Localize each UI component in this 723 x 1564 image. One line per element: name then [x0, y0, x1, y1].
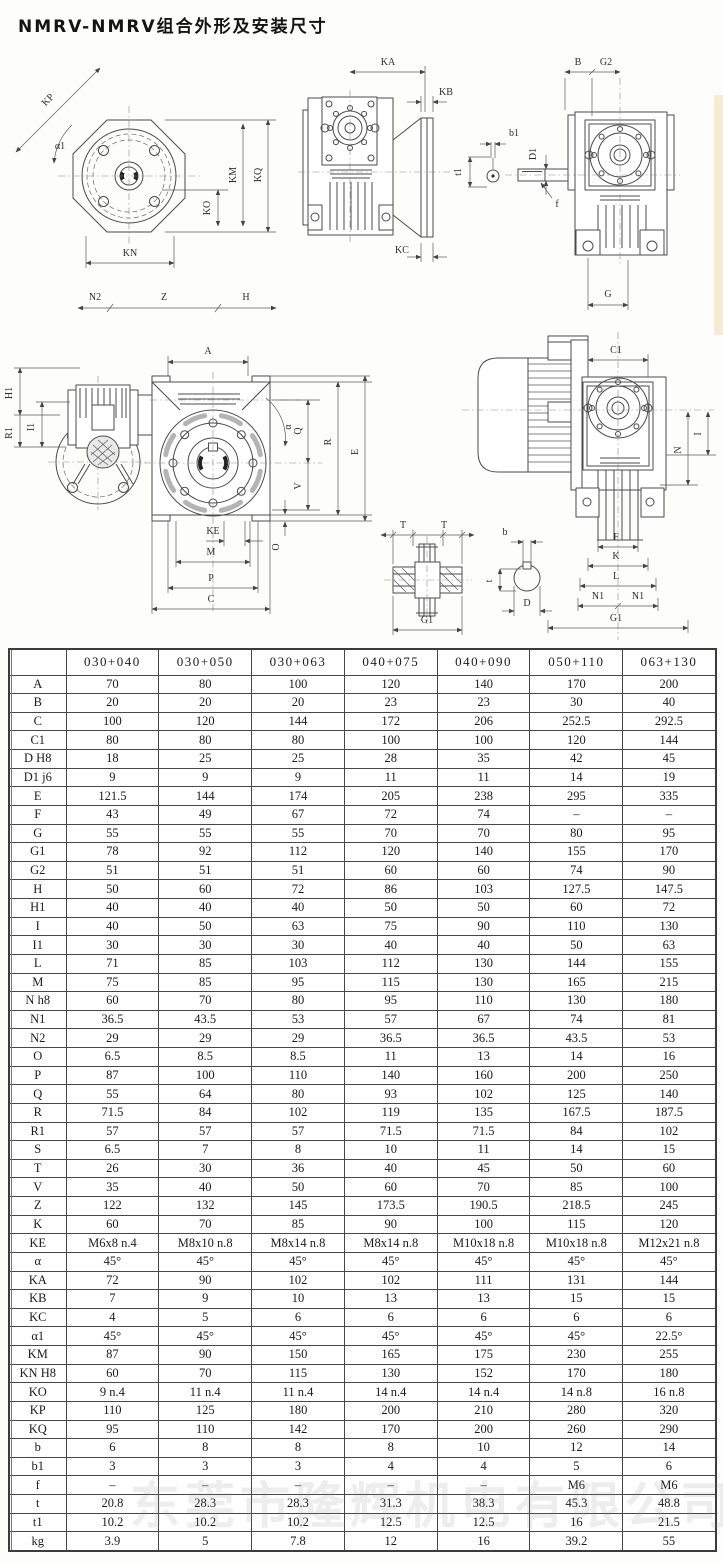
- value-cell: 125: [159, 1401, 252, 1420]
- row-label: KO: [9, 1383, 66, 1402]
- value-cell: 29: [252, 1029, 345, 1048]
- value-cell: 110: [159, 1420, 252, 1439]
- value-cell: 28.3: [252, 1495, 345, 1514]
- value-cell: 152: [437, 1364, 530, 1383]
- dimension-table: 030+040030+050030+063040+075040+090050+1…: [8, 648, 717, 1552]
- row-label: KQ: [9, 1420, 66, 1439]
- value-cell: 71.5: [344, 1122, 437, 1141]
- value-cell: 60: [623, 1159, 716, 1178]
- table-row: KC4566666: [9, 1308, 716, 1327]
- value-cell: 40: [252, 899, 345, 918]
- value-cell: 144: [623, 731, 716, 750]
- dim-label-kc: KC: [395, 245, 409, 256]
- table-row: T26303640455060: [9, 1159, 716, 1178]
- table-row: t20.828.328.331.338.345.348.8: [9, 1495, 716, 1514]
- value-cell: 70: [66, 675, 159, 694]
- value-cell: 45: [623, 750, 716, 769]
- value-cell: 50: [66, 880, 159, 899]
- value-cell: 100: [344, 731, 437, 750]
- value-cell: 25: [252, 750, 345, 769]
- value-cell: 172: [344, 712, 437, 731]
- dim-label-b1: b1: [509, 128, 519, 139]
- value-cell: 55: [66, 824, 159, 843]
- value-cell: 238: [437, 787, 530, 806]
- value-cell: 215: [623, 973, 716, 992]
- value-cell: 245: [623, 1197, 716, 1216]
- column-header: 030+040: [66, 649, 159, 675]
- table-row: I4050637590110130: [9, 917, 716, 936]
- value-cell: 40: [344, 1159, 437, 1178]
- value-cell: 39.2: [530, 1532, 623, 1551]
- value-cell: 80: [530, 824, 623, 843]
- value-cell: 110: [66, 1401, 159, 1420]
- value-cell: 38.3: [437, 1495, 530, 1514]
- value-cell: 57: [159, 1122, 252, 1141]
- table-row: b6888101214: [9, 1439, 716, 1458]
- value-cell: 280: [530, 1401, 623, 1420]
- row-label: C1: [9, 731, 66, 750]
- value-cell: 16: [437, 1532, 530, 1551]
- dim-label-h: H: [242, 292, 249, 303]
- dim-label-d1: D1: [528, 148, 539, 160]
- value-cell: 48.8: [623, 1495, 716, 1514]
- value-cell: 140: [344, 1066, 437, 1085]
- table-row: S6.57810111415: [9, 1141, 716, 1160]
- value-cell: 50: [252, 1178, 345, 1197]
- row-label: KM: [9, 1346, 66, 1365]
- value-cell: 40: [344, 936, 437, 955]
- value-cell: 95: [623, 824, 716, 843]
- value-cell: 50: [530, 1159, 623, 1178]
- value-cell: M8x14 n.8: [252, 1234, 345, 1253]
- value-cell: 45°: [252, 1327, 345, 1346]
- value-cell: 170: [530, 675, 623, 694]
- value-cell: 20.8: [66, 1495, 159, 1514]
- row-label: N h8: [9, 992, 66, 1011]
- value-cell: 190.5: [437, 1197, 530, 1216]
- table-row: D H818252528354245: [9, 750, 716, 769]
- value-cell: 20: [252, 694, 345, 713]
- value-cell: 50: [437, 899, 530, 918]
- value-cell: 130: [623, 917, 716, 936]
- table-row: N h860708095110130180: [9, 992, 716, 1011]
- row-label: A: [9, 675, 66, 694]
- value-cell: 45°: [66, 1327, 159, 1346]
- value-cell: 115: [344, 973, 437, 992]
- shaft-view-drawing: b t D: [484, 527, 552, 616]
- dim-label-kb: KB: [439, 87, 453, 98]
- value-cell: 110: [252, 1066, 345, 1085]
- value-cell: 30: [66, 936, 159, 955]
- value-cell: 90: [159, 1346, 252, 1365]
- value-cell: 120: [530, 731, 623, 750]
- table-row: H50607286103127.5147.5: [9, 880, 716, 899]
- value-cell: 15: [623, 1141, 716, 1160]
- row-label: α1: [9, 1327, 66, 1346]
- value-cell: 120: [623, 1215, 716, 1234]
- value-cell: –: [159, 1476, 252, 1495]
- value-cell: 29: [159, 1029, 252, 1048]
- dim-label-b: B: [575, 57, 582, 68]
- row-label: N1: [9, 1010, 66, 1029]
- value-cell: 11: [437, 1141, 530, 1160]
- value-cell: 31.3: [344, 1495, 437, 1514]
- table-row: Z122132145173.5190.5218.5245: [9, 1197, 716, 1216]
- row-label: KE: [9, 1234, 66, 1253]
- value-cell: 165: [530, 973, 623, 992]
- row-label: N2: [9, 1029, 66, 1048]
- value-cell: 90: [159, 1271, 252, 1290]
- value-cell: 200: [623, 675, 716, 694]
- value-cell: 86: [344, 880, 437, 899]
- value-cell: 175: [437, 1346, 530, 1365]
- value-cell: 85: [252, 1215, 345, 1234]
- value-cell: 110: [437, 992, 530, 1011]
- table-header-row: 030+040030+050030+063040+075040+090050+1…: [9, 649, 716, 675]
- value-cell: 45°: [344, 1327, 437, 1346]
- row-label: G1: [9, 843, 66, 862]
- value-cell: 30: [530, 694, 623, 713]
- value-cell: 320: [623, 1401, 716, 1420]
- value-cell: 5: [159, 1532, 252, 1551]
- table-row: F4349677274––: [9, 805, 716, 824]
- front-view-drawing: B G2 D1 f G: [505, 57, 680, 310]
- value-cell: 60: [437, 861, 530, 880]
- value-cell: 144: [252, 712, 345, 731]
- value-cell: 9: [159, 1290, 252, 1309]
- value-cell: 180: [623, 1364, 716, 1383]
- value-cell: 11: [344, 768, 437, 787]
- value-cell: 20: [159, 694, 252, 713]
- row-label: t1: [9, 1513, 66, 1532]
- table-row: N229292936.536.543.553: [9, 1029, 716, 1048]
- value-cell: 140: [623, 1085, 716, 1104]
- row-label: KC: [9, 1308, 66, 1327]
- row-label: E: [9, 787, 66, 806]
- value-cell: 67: [252, 805, 345, 824]
- value-cell: 210: [437, 1401, 530, 1420]
- value-cell: 14 n.4: [344, 1383, 437, 1402]
- value-cell: 43.5: [159, 1010, 252, 1029]
- value-cell: 74: [530, 1010, 623, 1029]
- value-cell: 115: [252, 1364, 345, 1383]
- value-cell: 36: [252, 1159, 345, 1178]
- dim-label-q: Q: [293, 427, 304, 435]
- dim-label-alpha1: α1: [55, 141, 65, 152]
- row-label: kg: [9, 1532, 66, 1551]
- value-cell: 84: [159, 1103, 252, 1122]
- value-cell: –: [623, 805, 716, 824]
- value-cell: 43: [66, 805, 159, 824]
- value-cell: 45°: [623, 1252, 716, 1271]
- value-cell: 72: [344, 805, 437, 824]
- value-cell: 90: [437, 917, 530, 936]
- value-cell: 102: [437, 1085, 530, 1104]
- row-label: KA: [9, 1271, 66, 1290]
- value-cell: 102: [623, 1122, 716, 1141]
- row-label: I1: [9, 936, 66, 955]
- value-cell: 130: [437, 954, 530, 973]
- value-cell: 11 n.4: [159, 1383, 252, 1402]
- value-cell: 4: [437, 1457, 530, 1476]
- value-cell: 14: [530, 768, 623, 787]
- value-cell: 5: [159, 1308, 252, 1327]
- row-label: Q: [9, 1085, 66, 1104]
- value-cell: 120: [344, 843, 437, 862]
- value-cell: 15: [530, 1290, 623, 1309]
- value-cell: 45°: [159, 1327, 252, 1346]
- value-cell: 6: [530, 1308, 623, 1327]
- value-cell: 147.5: [623, 880, 716, 899]
- value-cell: 121.5: [66, 787, 159, 806]
- dim-label-a: A: [204, 346, 212, 357]
- value-cell: 144: [530, 954, 623, 973]
- value-cell: 80: [252, 992, 345, 1011]
- column-header: 050+110: [530, 649, 623, 675]
- dimension-table-body: 030+040030+050030+063040+075040+090050+1…: [9, 649, 716, 1551]
- value-cell: 10: [252, 1290, 345, 1309]
- value-cell: 67: [437, 1010, 530, 1029]
- value-cell: 23: [437, 694, 530, 713]
- value-cell: 74: [437, 805, 530, 824]
- value-cell: 45°: [530, 1327, 623, 1346]
- row-label: f: [9, 1476, 66, 1495]
- value-cell: 145: [252, 1197, 345, 1216]
- value-cell: 13: [437, 1290, 530, 1309]
- table-row: α45°45°45°45°45°45°45°: [9, 1252, 716, 1271]
- value-cell: 28.3: [159, 1495, 252, 1514]
- table-row: E121.5144174205238295335: [9, 787, 716, 806]
- value-cell: 111: [437, 1271, 530, 1290]
- value-cell: 14: [530, 1141, 623, 1160]
- table-row: t110.210.210.212.512.51621.5: [9, 1513, 716, 1532]
- table-row: KA7290102102111131144: [9, 1271, 716, 1290]
- value-cell: 9: [159, 768, 252, 787]
- row-label: D H8: [9, 750, 66, 769]
- dim-label-f: f: [555, 199, 559, 210]
- value-cell: 60: [159, 880, 252, 899]
- row-label: S: [9, 1141, 66, 1160]
- value-cell: 55: [252, 824, 345, 843]
- value-cell: 75: [66, 973, 159, 992]
- value-cell: 170: [623, 843, 716, 862]
- value-cell: 8: [159, 1439, 252, 1458]
- value-cell: 71.5: [66, 1103, 159, 1122]
- value-cell: 10: [437, 1439, 530, 1458]
- column-header: 030+050: [159, 649, 252, 675]
- value-cell: 112: [344, 954, 437, 973]
- value-cell: 12.5: [344, 1513, 437, 1532]
- dim-label-n: N: [673, 446, 684, 453]
- value-cell: 200: [530, 1066, 623, 1085]
- value-cell: 9: [66, 768, 159, 787]
- dim-label-t-left: T: [400, 520, 406, 531]
- value-cell: 102: [344, 1271, 437, 1290]
- value-cell: 22.5°: [623, 1327, 716, 1346]
- value-cell: 29: [66, 1029, 159, 1048]
- side-view-drawing: KA KB KC b1 t1: [298, 57, 519, 262]
- table-row: P87100110140160200250: [9, 1066, 716, 1085]
- value-cell: 71.5: [437, 1122, 530, 1141]
- value-cell: 10.2: [66, 1513, 159, 1532]
- value-cell: 130: [437, 973, 530, 992]
- value-cell: 81: [623, 1010, 716, 1029]
- value-cell: 60: [66, 1364, 159, 1383]
- value-cell: 11 n.4: [252, 1383, 345, 1402]
- value-cell: 8.5: [252, 1048, 345, 1067]
- row-label: I: [9, 917, 66, 936]
- value-cell: 51: [159, 861, 252, 880]
- value-cell: 6: [66, 1439, 159, 1458]
- value-cell: M6: [530, 1476, 623, 1495]
- value-cell: 7: [159, 1141, 252, 1160]
- value-cell: 130: [344, 1364, 437, 1383]
- flange-view-drawing: KP α1 KO KM KQ KN N2 Z H: [16, 68, 276, 312]
- value-cell: 26: [66, 1159, 159, 1178]
- value-cell: 120: [344, 675, 437, 694]
- table-row: α145°45°45°45°45°45°22.5°: [9, 1327, 716, 1346]
- value-cell: 90: [623, 861, 716, 880]
- dim-label-o: O: [271, 543, 282, 550]
- value-cell: 125: [530, 1085, 623, 1104]
- value-cell: 6.5: [66, 1141, 159, 1160]
- value-cell: 335: [623, 787, 716, 806]
- dim-label-t-right: T: [441, 520, 447, 531]
- value-cell: 57: [252, 1122, 345, 1141]
- scan-double-border: [11, 650, 12, 1550]
- value-cell: 142: [252, 1420, 345, 1439]
- value-cell: 6: [252, 1308, 345, 1327]
- table-row: D1 j699911111419: [9, 768, 716, 787]
- value-cell: –: [252, 1476, 345, 1495]
- value-cell: 64: [159, 1085, 252, 1104]
- combo-view-drawing: H1 R1 I1: [4, 368, 152, 510]
- value-cell: 103: [437, 880, 530, 899]
- value-cell: 13: [437, 1048, 530, 1067]
- value-cell: M12x21 n.8: [623, 1234, 716, 1253]
- value-cell: 5: [530, 1457, 623, 1476]
- value-cell: 3: [66, 1457, 159, 1476]
- value-cell: 55: [66, 1085, 159, 1104]
- value-cell: 218.5: [530, 1197, 623, 1216]
- value-cell: 6: [344, 1308, 437, 1327]
- dim-label-r1: R1: [4, 427, 15, 439]
- table-row: f–––––M6M6: [9, 1476, 716, 1495]
- value-cell: 13: [344, 1290, 437, 1309]
- table-row: KEM6x8 n.4M8x10 n.8M8x14 n.8M8x14 n.8M10…: [9, 1234, 716, 1253]
- value-cell: 70: [159, 1215, 252, 1234]
- table-row: I130303040405063: [9, 936, 716, 955]
- value-cell: 165: [344, 1346, 437, 1365]
- value-cell: 100: [252, 675, 345, 694]
- motor-view-drawing: C1 I N F K L N1 N1 G1: [462, 332, 716, 640]
- value-cell: 230: [530, 1346, 623, 1365]
- table-row: V354050607085100: [9, 1178, 716, 1197]
- value-cell: 7: [66, 1290, 159, 1309]
- value-cell: 84: [530, 1122, 623, 1141]
- value-cell: 206: [437, 712, 530, 731]
- dim-label-i: I: [693, 432, 704, 435]
- value-cell: 80: [66, 731, 159, 750]
- value-cell: 14 n.4: [437, 1383, 530, 1402]
- value-cell: 23: [344, 694, 437, 713]
- value-cell: 12.5: [437, 1513, 530, 1532]
- value-cell: 115: [530, 1215, 623, 1234]
- dim-label-ko: KO: [202, 201, 213, 215]
- value-cell: 70: [437, 1178, 530, 1197]
- table-row: G17892112120140155170: [9, 843, 716, 862]
- table-row: kg3.957.8121639.255: [9, 1532, 716, 1551]
- value-cell: 51: [66, 861, 159, 880]
- value-cell: 6: [437, 1308, 530, 1327]
- dim-label-z: Z: [161, 292, 167, 303]
- value-cell: 155: [530, 843, 623, 862]
- value-cell: 205: [344, 787, 437, 806]
- value-cell: 6: [623, 1457, 716, 1476]
- table-row: L7185103112130144155: [9, 954, 716, 973]
- value-cell: 12: [530, 1439, 623, 1458]
- value-cell: 103: [252, 954, 345, 973]
- value-cell: 6: [623, 1308, 716, 1327]
- value-cell: 53: [252, 1010, 345, 1029]
- dim-label-c1: C1: [610, 345, 622, 356]
- table-row: M758595115130165215: [9, 973, 716, 992]
- value-cell: 200: [344, 1401, 437, 1420]
- page: { "page": { "title": "NMRV-NMRV组合外形及安装尺寸…: [0, 0, 723, 1564]
- value-cell: 120: [159, 712, 252, 731]
- value-cell: M6: [623, 1476, 716, 1495]
- value-cell: 45°: [437, 1327, 530, 1346]
- value-cell: 100: [437, 1215, 530, 1234]
- value-cell: 78: [66, 843, 159, 862]
- row-label: KP: [9, 1401, 66, 1420]
- value-cell: 75: [344, 917, 437, 936]
- value-cell: 19: [623, 768, 716, 787]
- technical-drawings: KP α1 KO KM KQ KN N2 Z H KA: [0, 50, 723, 648]
- table-row: R157575771.571.584102: [9, 1122, 716, 1141]
- value-cell: 127.5: [530, 880, 623, 899]
- column-header: 030+063: [252, 649, 345, 675]
- value-cell: 36.5: [344, 1029, 437, 1048]
- value-cell: 131: [530, 1271, 623, 1290]
- value-cell: 57: [66, 1122, 159, 1141]
- row-label: G2: [9, 861, 66, 880]
- dim-label-l: L: [613, 571, 619, 582]
- row-label: L: [9, 954, 66, 973]
- dim-label-ka: KA: [381, 57, 396, 68]
- value-cell: 170: [344, 1420, 437, 1439]
- table-row: KO9 n.411 n.411 n.414 n.414 n.414 n.816 …: [9, 1383, 716, 1402]
- value-cell: 102: [252, 1271, 345, 1290]
- value-cell: 10: [344, 1141, 437, 1160]
- value-cell: 255: [623, 1346, 716, 1365]
- value-cell: 290: [623, 1420, 716, 1439]
- value-cell: 45°: [159, 1252, 252, 1271]
- value-cell: 160: [437, 1066, 530, 1085]
- value-cell: 80: [252, 731, 345, 750]
- value-cell: –: [344, 1476, 437, 1495]
- value-cell: 150: [252, 1346, 345, 1365]
- value-cell: 72: [252, 880, 345, 899]
- row-label: V: [9, 1178, 66, 1197]
- value-cell: 180: [252, 1401, 345, 1420]
- value-cell: 72: [623, 899, 716, 918]
- value-cell: M6x8 n.4: [66, 1234, 159, 1253]
- value-cell: 51: [252, 861, 345, 880]
- table-row: b13334456: [9, 1457, 716, 1476]
- value-cell: 119: [344, 1103, 437, 1122]
- row-label: KB: [9, 1290, 66, 1309]
